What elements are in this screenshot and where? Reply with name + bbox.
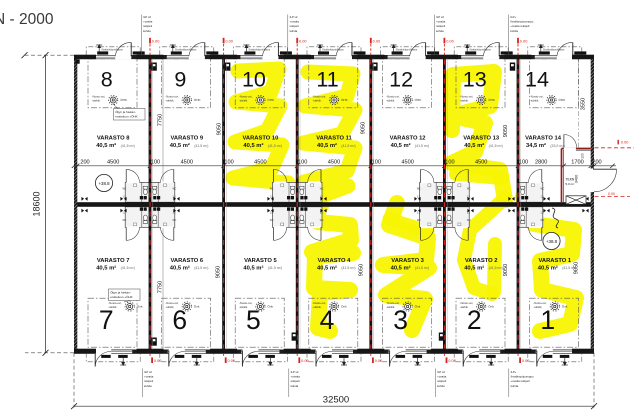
svg-text:-särkik.: -särkik. — [386, 99, 395, 103]
svg-text:0.00: 0.00 — [522, 358, 530, 363]
svg-text:8: 8 — [101, 68, 113, 92]
svg-text:kohda: kohda — [290, 29, 298, 33]
svg-text:Önk: Önk — [341, 305, 347, 309]
svg-text:erotteluun +ÖHK: erotteluun +ÖHK — [110, 295, 132, 299]
svg-text:9050: 9050 — [359, 264, 365, 276]
svg-text:ÖHK: ÖHK — [559, 98, 567, 102]
svg-text:9: 9 — [174, 68, 186, 92]
svg-text:-särkik.: -särkik. — [460, 99, 469, 103]
svg-text:Önk: Önk — [137, 305, 143, 309]
svg-text:WC: WC — [123, 189, 127, 191]
svg-text:3550: 3550 — [581, 98, 587, 110]
svg-text:ÖHK: ÖHK — [415, 98, 423, 102]
svg-text:ILP x2: ILP x2 — [437, 370, 445, 374]
svg-text:0.00: 0.00 — [228, 358, 236, 363]
svg-text:0.00: 0.00 — [621, 141, 628, 145]
svg-text:(41,5 m²): (41,5 m²) — [268, 266, 282, 270]
svg-text:Ilmalämpöpumppu: Ilmalämpöpumppu — [510, 20, 533, 24]
svg-text:-särkik.: -särkik. — [92, 99, 101, 103]
svg-text:(41,5 m²): (41,5 m²) — [415, 144, 429, 148]
svg-text:+ovatta: +ovatta — [436, 20, 446, 24]
svg-text:11: 11 — [316, 68, 338, 92]
svg-text:7750: 7750 — [158, 281, 164, 293]
svg-text:(41,5 m²): (41,5 m²) — [341, 144, 355, 148]
svg-text:rekipelt: rekipelt — [290, 24, 299, 28]
svg-text:VARASTO 1: VARASTO 1 — [538, 258, 571, 264]
svg-text:WC: WC — [541, 189, 545, 191]
svg-text:WC: WC — [467, 189, 471, 191]
svg-text:+38.8: +38.8 — [98, 181, 110, 186]
svg-text:18600: 18600 — [32, 191, 42, 216]
svg-text:ILP x2: ILP x2 — [143, 15, 151, 19]
svg-text:0.00: 0.00 — [225, 38, 233, 43]
svg-text:(41,5 m²): (41,5 m²) — [121, 144, 135, 148]
svg-text:VARASTO 12: VARASTO 12 — [390, 136, 426, 142]
svg-text:VARASTO 8: VARASTO 8 — [97, 136, 130, 142]
svg-text:ILP+: ILP+ — [511, 370, 517, 374]
svg-text:1: 1 — [540, 305, 555, 335]
svg-text:(41,5 m²): (41,5 m²) — [194, 266, 208, 270]
svg-text:40,5 m²: 40,5 m² — [391, 142, 411, 149]
svg-text:10: 10 — [242, 68, 266, 92]
svg-text:Önk: Önk — [562, 305, 568, 309]
svg-text:+ovatta rekipelt: +ovatta rekipelt — [510, 24, 529, 28]
svg-text:40,5 m²: 40,5 m² — [464, 265, 484, 272]
svg-text:VARASTO 10: VARASTO 10 — [242, 136, 278, 142]
svg-text:9050: 9050 — [503, 125, 509, 137]
svg-text:Sisäänkäynti/katos: Sisäänkäynti/katos — [543, 47, 565, 51]
svg-text:(33,0 m²): (33,0 m²) — [550, 144, 564, 148]
svg-text:-särkik.: -särkik. — [530, 99, 539, 103]
svg-text:0.00: 0.00 — [375, 358, 383, 363]
svg-text:WC: WC — [173, 189, 177, 191]
svg-text:N - 2000: N - 2000 — [0, 11, 54, 28]
svg-text:-särkik.: -särkik. — [165, 99, 174, 103]
svg-text:kohda: kohda — [436, 29, 444, 33]
svg-text:34,5 m²: 34,5 m² — [526, 142, 546, 149]
svg-text:5,0 m²: 5,0 m² — [566, 182, 575, 186]
svg-text:4500: 4500 — [107, 159, 119, 165]
svg-text:-särkik.: -särkik. — [533, 305, 542, 309]
svg-text:0.00: 0.00 — [154, 358, 162, 363]
svg-text:(41,5 m²): (41,5 m²) — [562, 266, 576, 270]
svg-text:40,5 m²: 40,5 m² — [464, 142, 484, 149]
svg-text:0.00: 0.00 — [520, 38, 528, 43]
svg-text:kohda: kohda — [437, 384, 445, 388]
svg-text:(41,5 m²): (41,5 m²) — [341, 266, 355, 270]
svg-text:3: 3 — [393, 305, 408, 335]
svg-text:12: 12 — [389, 68, 413, 92]
svg-text:Önk: Önk — [267, 305, 273, 309]
svg-text:7750: 7750 — [158, 114, 164, 126]
svg-text:ÖHK: ÖHK — [488, 98, 496, 102]
svg-text:4500: 4500 — [401, 159, 413, 165]
svg-text:4500: 4500 — [328, 159, 340, 165]
svg-text:VARASTO 9: VARASTO 9 — [170, 136, 203, 142]
svg-text:WC: WC — [320, 189, 324, 191]
svg-text:ÖHK: ÖHK — [267, 98, 275, 102]
svg-text:200: 200 — [80, 159, 89, 165]
svg-text:ILP x2: ILP x2 — [144, 370, 152, 374]
svg-text:14: 14 — [525, 68, 549, 92]
svg-text:0.00: 0.00 — [152, 38, 160, 43]
svg-text:13: 13 — [463, 68, 487, 92]
svg-text:40,5 m²: 40,5 m² — [96, 265, 116, 272]
svg-text:6: 6 — [172, 305, 187, 335]
svg-text:+38.8: +38.8 — [546, 239, 558, 244]
svg-text:WC: WC — [417, 220, 421, 222]
svg-text:-särkik.: -särkik. — [165, 305, 174, 309]
svg-text:-särkik.: -särkik. — [313, 99, 322, 103]
svg-text:VARASTO 7: VARASTO 7 — [97, 258, 130, 264]
svg-text:9050: 9050 — [503, 264, 509, 276]
svg-text:Sisäänkäynti/katos: Sisäänkäynti/katos — [101, 47, 123, 51]
svg-text:5: 5 — [246, 305, 261, 335]
svg-text:32500: 32500 — [323, 395, 349, 406]
svg-text:40,5 m²: 40,5 m² — [243, 142, 263, 149]
svg-text:WC: WC — [417, 189, 421, 191]
svg-text:(41,5 m²): (41,5 m²) — [489, 144, 503, 148]
svg-text:rekipelt: rekipelt — [436, 24, 445, 28]
svg-text:WC: WC — [467, 220, 471, 222]
svg-text:Önk: Önk — [194, 305, 200, 309]
svg-text:rekipelt: rekipelt — [144, 379, 153, 383]
svg-text:2800: 2800 — [535, 159, 547, 165]
svg-text:40,5 m²: 40,5 m² — [96, 142, 116, 149]
svg-text:100: 100 — [581, 153, 585, 159]
svg-text:-särkik.: -särkik. — [313, 305, 322, 309]
svg-text:WC: WC — [320, 220, 324, 222]
svg-text:kohda: kohda — [144, 384, 152, 388]
svg-text:VARASTO 2: VARASTO 2 — [465, 258, 498, 264]
svg-text:rekipelt: rekipelt — [291, 379, 300, 383]
svg-text:TEKN: TEKN — [566, 178, 575, 182]
svg-text:ILP x2: ILP x2 — [436, 15, 444, 19]
svg-text:-särkik.: -särkik. — [239, 305, 248, 309]
svg-text:0.00: 0.00 — [301, 358, 309, 363]
svg-text:0.00: 0.00 — [373, 38, 381, 43]
svg-text:Sisäänkäynti/katos: Sisäänkäynti/katos — [248, 47, 270, 51]
svg-text:0.00: 0.00 — [446, 38, 454, 43]
svg-text:ÖHK: ÖHK — [341, 98, 349, 102]
svg-text:0.00: 0.00 — [448, 358, 456, 363]
svg-text:9050: 9050 — [361, 122, 367, 134]
svg-text:100: 100 — [445, 159, 454, 165]
svg-text:VARASTO 11: VARASTO 11 — [316, 136, 352, 142]
svg-text:kohda: kohda — [291, 384, 299, 388]
svg-text:4500: 4500 — [181, 159, 193, 165]
svg-text:ÖHK: ÖHK — [194, 98, 202, 102]
svg-text:erotteluun +ÖHK: erotteluun +ÖHK — [115, 115, 137, 119]
svg-text:(41,5 m²): (41,5 m²) — [415, 266, 429, 270]
svg-text:+ovatta rekipelt: +ovatta rekipelt — [511, 379, 530, 383]
svg-text:0.00: 0.00 — [608, 192, 615, 196]
svg-text:9050: 9050 — [217, 123, 223, 135]
svg-text:(41,5 m²): (41,5 m²) — [489, 266, 503, 270]
svg-text:2: 2 — [467, 305, 482, 335]
svg-text:7: 7 — [99, 305, 114, 335]
svg-text:100: 100 — [519, 159, 528, 165]
svg-text:(41,5 m²): (41,5 m²) — [194, 144, 208, 148]
svg-text:100: 100 — [372, 159, 381, 165]
svg-text:Öljyn ja hiekan-: Öljyn ja hiekan- — [115, 110, 136, 114]
svg-text:Önk: Önk — [415, 305, 421, 309]
svg-text:4500: 4500 — [254, 159, 266, 165]
svg-text:0.00: 0.00 — [299, 38, 307, 43]
svg-text:100: 100 — [224, 159, 233, 165]
svg-text:WC: WC — [541, 220, 545, 222]
svg-text:9050: 9050 — [216, 266, 222, 278]
svg-text:Sisäänkäynti/katos: Sisäänkäynti/katos — [322, 47, 344, 51]
svg-text:40,5 m²: 40,5 m² — [317, 265, 337, 272]
svg-text:+ovatta: +ovatta — [290, 20, 300, 24]
svg-text:3400: 3400 — [575, 175, 579, 183]
svg-text:40,5 m²: 40,5 m² — [391, 265, 411, 272]
svg-text:kohda: kohda — [143, 29, 151, 33]
svg-text:ILP x2: ILP x2 — [291, 370, 299, 374]
svg-text:Sisäänkäynti/katos: Sisäänkäynti/katos — [469, 47, 491, 51]
svg-text:WC: WC — [123, 220, 127, 222]
svg-text:WC: WC — [270, 189, 274, 191]
svg-text:40,5 m²: 40,5 m² — [243, 265, 263, 272]
svg-text:VARASTO 13: VARASTO 13 — [463, 136, 500, 142]
svg-text:Öljyn ja hiekan-: Öljyn ja hiekan- — [110, 291, 131, 295]
svg-text:4500: 4500 — [475, 159, 487, 165]
svg-text:rekipelt: rekipelt — [143, 24, 152, 28]
svg-text:100: 100 — [151, 159, 160, 165]
svg-text:VARASTO 3: VARASTO 3 — [391, 258, 424, 264]
svg-text:+ovatta: +ovatta — [144, 375, 154, 379]
svg-text:(41,5 m²): (41,5 m²) — [268, 144, 282, 148]
svg-text:Ilmalämpöpumppu: Ilmalämpöpumppu — [511, 375, 534, 379]
svg-text:VARASTO 6: VARASTO 6 — [170, 258, 203, 264]
svg-text:40,5 m²: 40,5 m² — [170, 142, 190, 149]
svg-text:Sisäänkäynti/katos: Sisäänkäynti/katos — [175, 47, 197, 51]
svg-text:Sisäänkäynti/katos: Sisäänkäynti/katos — [396, 47, 418, 51]
svg-text:ÖHK: ÖHK — [120, 98, 128, 102]
svg-text:-särkik.: -särkik. — [108, 305, 117, 309]
svg-text:kohda: kohda — [511, 384, 519, 388]
svg-text:WC: WC — [270, 220, 274, 222]
svg-text:ILP+: ILP+ — [510, 15, 516, 19]
svg-text:Önk: Önk — [488, 305, 494, 309]
svg-text:ILP x2: ILP x2 — [290, 15, 298, 19]
svg-text:+ovatta: +ovatta — [143, 20, 153, 24]
svg-text:VARASTO 5: VARASTO 5 — [244, 258, 277, 264]
svg-text:VARASTO 14: VARASTO 14 — [525, 136, 562, 142]
svg-text:WC: WC — [173, 220, 177, 222]
svg-text:rekipelt: rekipelt — [437, 379, 446, 383]
svg-text:kohda: kohda — [510, 29, 518, 33]
svg-text:(41,5 m²): (41,5 m²) — [121, 266, 135, 270]
svg-text:-särkik.: -särkik. — [386, 305, 395, 309]
svg-text:VARASTO 4: VARASTO 4 — [318, 258, 351, 264]
svg-text:40,5 m²: 40,5 m² — [170, 265, 190, 272]
svg-text:100: 100 — [298, 159, 307, 165]
svg-text:+ovatta: +ovatta — [291, 375, 301, 379]
svg-text:1700: 1700 — [571, 159, 583, 165]
svg-text:40,5 m²: 40,5 m² — [317, 142, 337, 149]
svg-text:4: 4 — [320, 305, 335, 335]
svg-text:-särkik.: -särkik. — [460, 305, 469, 309]
svg-text:+ovatta: +ovatta — [437, 375, 447, 379]
svg-text:-särkik.: -särkik. — [239, 99, 248, 103]
svg-text:40,5 m²: 40,5 m² — [538, 265, 558, 272]
